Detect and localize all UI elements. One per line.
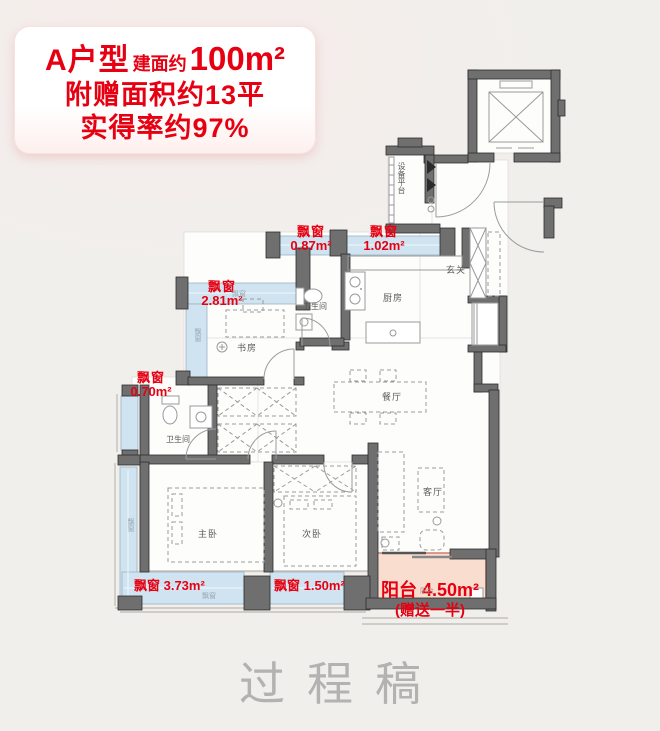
room-label-entry: 玄关	[446, 263, 466, 276]
sink-counter-icon	[366, 322, 420, 343]
bay-label-1.50: 飘窗 1.50m²	[274, 579, 345, 593]
unit-headline: A户型 建面约 100m²	[15, 35, 315, 79]
basin-icon	[296, 314, 312, 330]
basin-icon	[190, 406, 212, 428]
watermark: 过程稿	[0, 648, 660, 714]
bay-tag: 飘窗	[125, 518, 135, 532]
area-prefix: 建面约	[133, 50, 187, 76]
room-label-study: 书房	[237, 341, 257, 354]
bay-tag: 飘窗	[232, 289, 246, 299]
bay-label-1.02: 飘窗 1.02m²	[343, 225, 425, 252]
bay-tag: 飘窗	[202, 591, 216, 601]
bay-label-2.81: 飘窗 2.81m²	[186, 280, 258, 307]
room-label-living: 客厅	[423, 485, 443, 498]
bay-label-0.70: 飘窗 0.70m²	[114, 371, 188, 398]
room-label-equipment: 设备平台	[396, 162, 407, 200]
bay-tag: 飘窗	[192, 328, 202, 342]
area-value: 100m²	[190, 40, 285, 78]
bay-label-3.73: 飘窗 3.73m²	[134, 579, 205, 593]
room-label-bath1: 卫生间	[303, 301, 327, 312]
unit-info-card: A户型 建面约 100m² 附赠面积约13平 实得率约97%	[14, 26, 316, 154]
floorplan-page: A户型 建面约 100m² 附赠面积约13平 实得率约97% 飘窗 0.87m²…	[0, 0, 660, 731]
bonus-area-line: 附赠面积约13平	[15, 79, 315, 112]
room-label-kitchen: 厨房	[383, 291, 403, 304]
balcony-tag: 阳台	[420, 586, 434, 596]
room-label-second: 次卧	[302, 527, 322, 540]
stove-icon	[345, 272, 365, 310]
unit-type: A户型	[45, 35, 130, 79]
efficiency-line: 实得率约97%	[15, 112, 315, 145]
room-label-dining: 餐厅	[382, 390, 402, 403]
room-label-bath2: 卫生间	[166, 434, 190, 445]
room-label-master: 主卧	[198, 527, 218, 540]
bay-label-0.87: 飘窗 0.87m²	[283, 225, 339, 252]
